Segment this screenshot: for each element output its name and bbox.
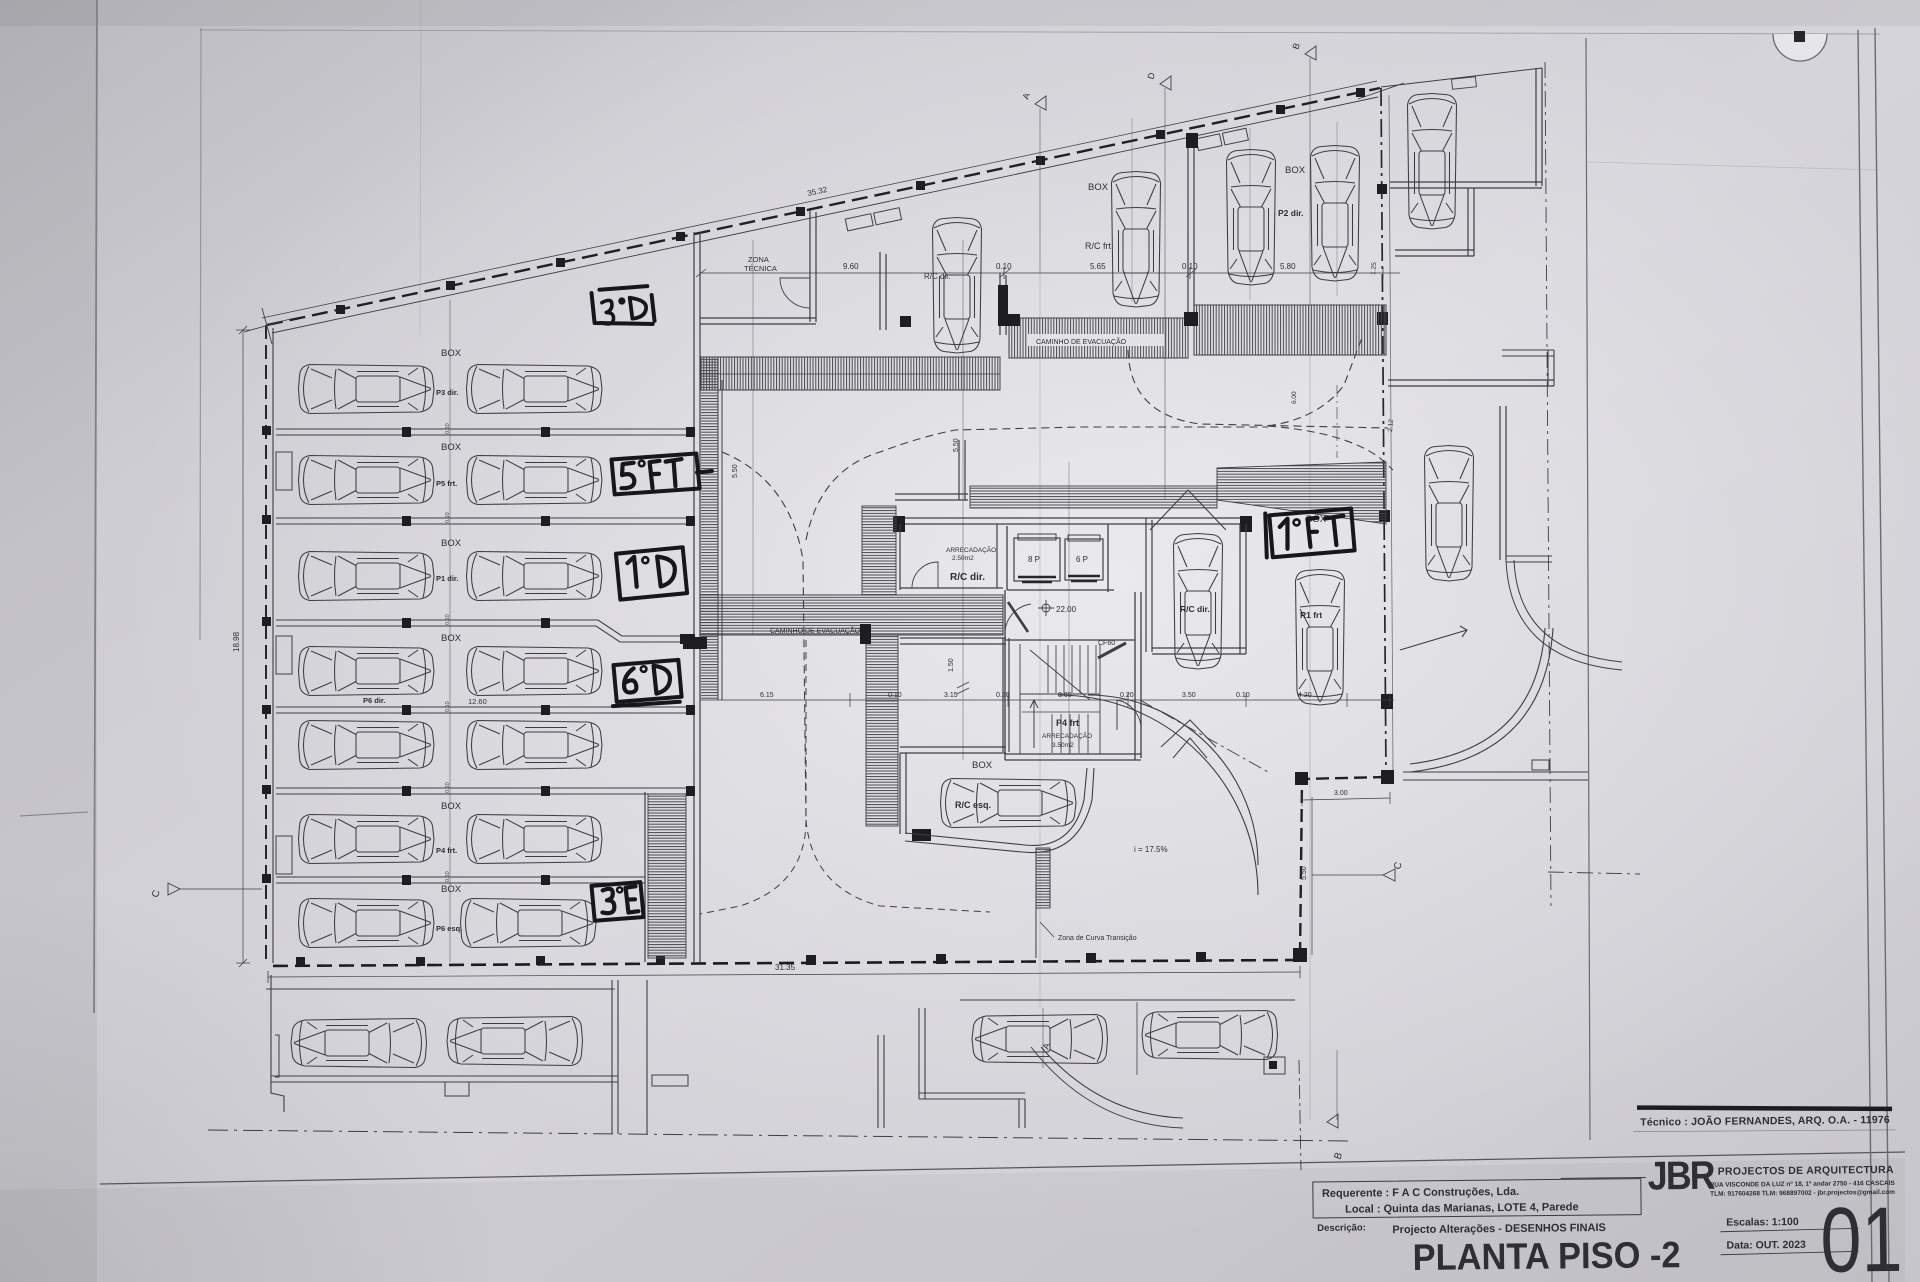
svg-text:ARRECADAÇÃO: ARRECADAÇÃO	[1042, 731, 1092, 740]
svg-text:1.50: 1.50	[948, 658, 955, 672]
svg-text:0.10: 0.10	[445, 871, 451, 882]
svg-text:BOX: BOX	[441, 801, 462, 812]
svg-text:Projecto Alterações - DESENHOS: Projecto Alterações - DESENHOS FINAIS	[1392, 1222, 1606, 1236]
svg-text:Técnico : JOÃO FERNANDES, ARQ.: Técnico : JOÃO FERNANDES, ARQ. O.A. - 11…	[1640, 1113, 1890, 1129]
svg-text:R/C esq.: R/C esq.	[955, 800, 991, 810]
svg-text:18.98: 18.98	[232, 631, 241, 652]
svg-text:3.15: 3.15	[944, 692, 958, 699]
svg-text:BOX: BOX	[441, 884, 462, 895]
svg-text:3.00: 3.00	[1334, 790, 1348, 797]
svg-text:P1 dir.: P1 dir.	[436, 574, 459, 583]
svg-text:R/C frt: R/C frt	[1085, 241, 1111, 251]
svg-text:PLANTA PISO -2: PLANTA PISO -2	[1412, 1234, 1680, 1278]
svg-text:6.15: 6.15	[760, 692, 774, 699]
svg-text:5.50: 5.50	[732, 464, 739, 478]
svg-text:CF60: CF60	[1098, 640, 1115, 647]
svg-text:R1 frt: R1 frt	[1300, 610, 1322, 620]
svg-text:R/C dir.: R/C dir.	[950, 572, 985, 583]
svg-text:4.20: 4.20	[1298, 692, 1312, 699]
svg-text:0.10: 0.10	[888, 692, 902, 699]
svg-text:2.50m2: 2.50m2	[952, 555, 974, 562]
svg-text:0.10: 0.10	[996, 262, 1012, 271]
svg-text:JBR: JBR	[1648, 1154, 1716, 1199]
svg-text:CAMINHO DE EVACUAÇÃO: CAMINHO DE EVACUAÇÃO	[770, 626, 861, 635]
svg-text:ZONA: ZONA	[748, 255, 769, 264]
svg-text:BOX: BOX	[441, 348, 462, 359]
svg-text:22.00: 22.00	[1056, 605, 1077, 614]
svg-text:5.65: 5.65	[1090, 262, 1106, 271]
svg-text:5.50: 5.50	[1301, 866, 1308, 880]
svg-text:Escalas: 1:100: Escalas: 1:100	[1726, 1216, 1799, 1229]
svg-text:9.60: 9.60	[843, 262, 859, 271]
svg-text:0.10: 0.10	[1182, 262, 1198, 271]
svg-text:P4 frt.: P4 frt.	[436, 846, 457, 855]
svg-text:BOX: BOX	[1285, 165, 1306, 176]
svg-text:3.50: 3.50	[1182, 692, 1196, 699]
svg-text:12.60: 12.60	[468, 697, 487, 706]
svg-text:BOX: BOX	[441, 538, 462, 549]
svg-text:1.25: 1.25	[1370, 262, 1378, 276]
svg-text:6.00: 6.00	[1291, 391, 1298, 404]
svg-text:01: 01	[1820, 1189, 1903, 1282]
svg-text:0.10: 0.10	[445, 782, 451, 793]
svg-text:8 P: 8 P	[1028, 555, 1040, 564]
svg-text:P5 frt.: P5 frt.	[436, 479, 457, 488]
svg-text:Requerente : F A C Construçõe: Requerente : F A C Construções, Lda.	[1322, 1186, 1519, 1200]
svg-text:0.10: 0.10	[445, 701, 451, 712]
svg-text:6 P: 6 P	[1076, 555, 1088, 564]
svg-text:P2 dir.: P2 dir.	[1278, 208, 1304, 218]
svg-text:BOX: BOX	[441, 633, 462, 644]
svg-text:0.10: 0.10	[445, 614, 451, 625]
svg-text:R/C dir.: R/C dir.	[924, 272, 951, 281]
svg-text:0.20: 0.20	[996, 692, 1010, 699]
svg-text:PROJECTOS DE ARQUITECTURA: PROJECTOS DE ARQUITECTURA	[1718, 1164, 1894, 1178]
svg-text:Data: OUT. 2023: Data: OUT. 2023	[1726, 1239, 1806, 1252]
svg-text:31.35: 31.35	[775, 963, 796, 972]
svg-text:TÉCNICA: TÉCNICA	[744, 264, 777, 273]
svg-text:3.65: 3.65	[1058, 692, 1072, 699]
svg-text:P6 esq.: P6 esq.	[436, 924, 462, 933]
svg-text:2.12: 2.12	[1387, 419, 1395, 433]
svg-text:R/C dir.: R/C dir.	[1180, 604, 1210, 614]
svg-text:5.50: 5.50	[953, 438, 960, 452]
svg-text:0.10: 0.10	[445, 512, 451, 523]
svg-text:BOX: BOX	[1088, 182, 1109, 193]
svg-text:BOX: BOX	[441, 442, 462, 453]
svg-text:0.20: 0.20	[1120, 692, 1134, 699]
svg-text:Descrição:: Descrição:	[1317, 1222, 1366, 1234]
svg-text:i = 17.5%: i = 17.5%	[1134, 845, 1168, 854]
svg-text:Local : Quinta das Marianas, L: Local : Quinta das Marianas, LOTE 4, Par…	[1345, 1201, 1579, 1215]
svg-text:P4 frt: P4 frt	[1056, 718, 1079, 728]
svg-text:3.50m2: 3.50m2	[1052, 742, 1074, 749]
svg-text:ARRECADAÇÃO: ARRECADAÇÃO	[946, 545, 996, 554]
svg-text:P6 dir.: P6 dir.	[363, 696, 386, 705]
svg-text:CAMINHO DE EVACUAÇÃO: CAMINHO DE EVACUAÇÃO	[1036, 337, 1127, 346]
svg-text:Zona de Curva Transição: Zona de Curva Transição	[1058, 935, 1137, 942]
svg-text:BOX: BOX	[972, 760, 993, 771]
svg-text:0.10: 0.10	[445, 423, 451, 434]
svg-text:P3 dir.: P3 dir.	[436, 388, 459, 397]
svg-text:0.10: 0.10	[1236, 692, 1250, 699]
svg-text:5.80: 5.80	[1280, 262, 1296, 271]
